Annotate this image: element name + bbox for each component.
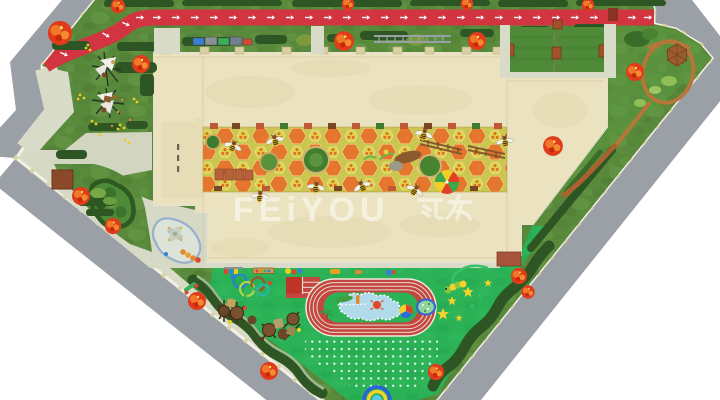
svg-text:FEiYOU: FEiYOU bbox=[233, 191, 390, 229]
